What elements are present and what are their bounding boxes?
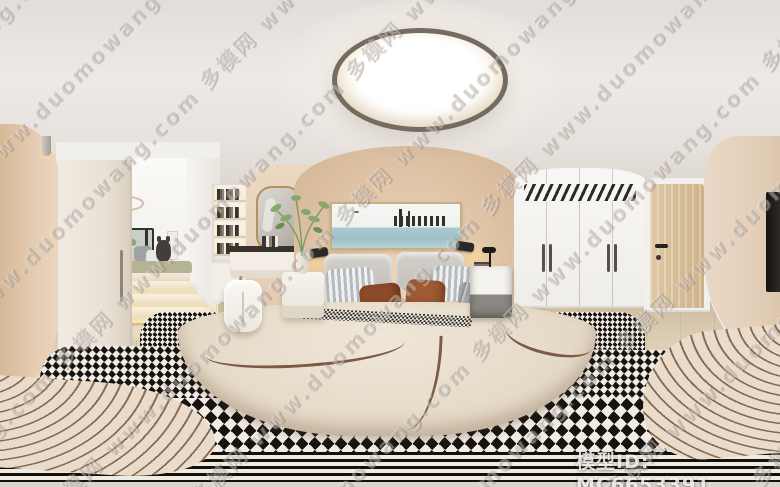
books: [217, 207, 239, 218]
books: [217, 189, 239, 200]
door-lock: [656, 255, 661, 260]
panorama-bedroom-scene: 多模网 www.duomowang.com 多模网 www.duomowang.…: [0, 0, 780, 487]
wardrobe-handle: [614, 244, 617, 272]
shelf-row: [214, 221, 246, 238]
tv-panel: [766, 192, 780, 292]
shelf-row: [214, 203, 246, 220]
wardrobe-vent-grille: [524, 184, 636, 201]
dog-figurine: [156, 240, 171, 262]
table-lamp-shade: [482, 247, 496, 253]
wardrobe-handle: [607, 244, 610, 272]
table-lamp-stem: [489, 252, 491, 267]
wardrobe-handle: [542, 244, 545, 272]
plant-branches: [262, 192, 334, 258]
stool-slit: [242, 292, 244, 324]
right-nightstand: [470, 266, 512, 318]
plant-side-table: [282, 272, 324, 318]
books: [217, 225, 239, 236]
artwork-pier-dashes: [394, 216, 446, 226]
seascape-artwork: [330, 202, 462, 250]
ceiling-spot-downlight: [42, 136, 51, 156]
closet-door-handle: [120, 250, 123, 302]
artwork-bird: [354, 211, 359, 213]
shelf-row: [214, 185, 246, 202]
wardrobe-handle: [549, 244, 552, 272]
model-id-text: 模型ID: MC6653391: [576, 447, 780, 487]
door-handle: [655, 244, 668, 248]
round-ceiling-light: [332, 28, 508, 132]
